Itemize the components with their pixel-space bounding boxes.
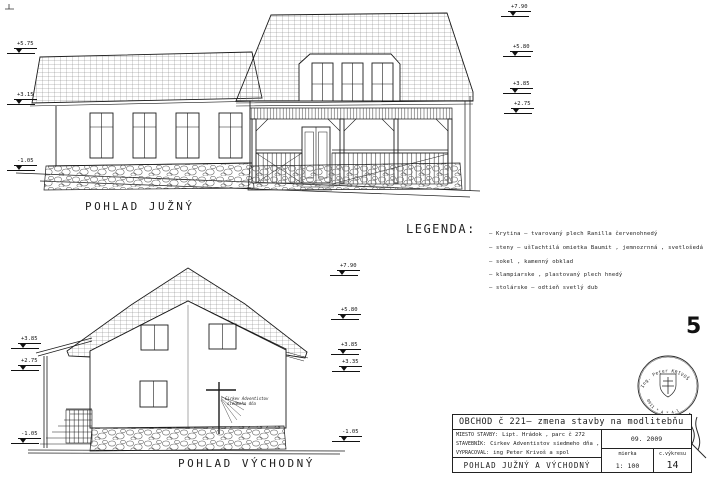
level-mark: +3.85: [18, 336, 41, 344]
drawing-sheet: Ing. Peter KRIVOŠ 0911 * A * 4-1 POHLAD …: [0, 0, 720, 480]
author-value: ing Peter Krivoš a spol: [493, 450, 569, 456]
scale-label: mierka: [601, 448, 653, 459]
client-value: Cirkev Adventistov siedmeho dňa , Bratis…: [490, 441, 601, 447]
author-label: VYPRACOVAL:: [456, 450, 489, 456]
level-mark: +5.75: [14, 41, 37, 49]
level-mark: -1.05: [14, 158, 37, 166]
level-mark: +5.80: [338, 307, 361, 315]
sheet-value: 14: [653, 459, 691, 472]
cross-caption-line2: siedmeho dňa: [227, 402, 256, 407]
level-mark: +3.85: [338, 342, 361, 350]
site-value: Lipt. Hrádok , parc č 272: [502, 432, 585, 438]
sheet-number: 5: [686, 314, 701, 339]
corner-tick: [5, 4, 14, 9]
client-label: STAVEBNÍK:: [456, 441, 486, 447]
level-mark: +3.35: [339, 359, 362, 367]
level-mark: +5.80: [510, 44, 533, 52]
south-view-label: POHLAD JUŽNÝ: [85, 200, 194, 213]
level-mark: -1.05: [18, 431, 41, 439]
level-mark: +2.75: [511, 101, 534, 109]
east-elevation: [28, 268, 345, 454]
level-mark: +7.90: [337, 263, 360, 271]
drawing-date: 09. 2009: [601, 430, 691, 448]
elevation-drawings: Ing. Peter KRIVOŠ 0911 * A * 4-1: [0, 0, 720, 480]
level-mark: +3.85: [510, 81, 533, 89]
drawing-name: POHLAD JUŽNÝ A VÝCHODNÝ: [453, 457, 601, 472]
level-mark: +7.90: [508, 4, 531, 12]
project-title: OBCHOD č 221– zmena stavby na modlitebňu: [453, 415, 691, 430]
coat-of-arms: [660, 374, 676, 397]
level-mark: -1.05: [339, 429, 362, 437]
legend-title: LEGENDA:: [406, 222, 476, 236]
stamp-number: 0911 * A * 4-1: [646, 398, 681, 415]
sheet-label: c.výkresu: [653, 448, 691, 459]
legend-item: – klampiarske , plastovaný plech hnedý: [489, 272, 622, 278]
level-mark: +2.75: [18, 358, 41, 366]
legend-item: – steny – ušľachtilá omietka Baumit , je…: [489, 245, 703, 251]
scale-value: 1: 100: [601, 459, 653, 472]
svg-text:0911 * A * 4-1: 0911 * A * 4-1: [646, 398, 681, 415]
legend-item: – stolárske – odtieň svetlý dub: [489, 285, 598, 291]
legend-item: – sokel , kamenný obklad: [489, 259, 573, 265]
legend-item: – Krytina – tvarovaný plech Ranilla červ…: [489, 231, 658, 237]
title-block: OBCHOD č 221– zmena stavby na modlitebňu…: [452, 414, 692, 473]
south-elevation: [16, 13, 480, 197]
east-view-label: POHLAD VÝCHODNÝ: [178, 457, 315, 470]
site-label: MIESTO STAVBY:: [456, 432, 498, 438]
south-windows: [90, 113, 242, 158]
level-mark: +3.15: [14, 92, 37, 100]
